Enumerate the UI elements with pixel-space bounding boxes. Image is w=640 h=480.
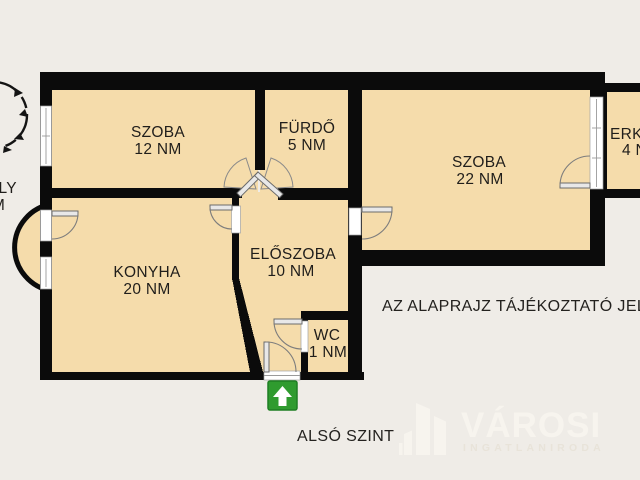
- room-konyha-name: KONYHA: [113, 264, 181, 281]
- balcony-door-szoba22: [590, 97, 603, 189]
- watermark-subtitle: INGATLANIRODA: [463, 442, 605, 454]
- balcony-door-opening: [41, 210, 52, 241]
- room-szoba-22-area: 22 NM: [456, 171, 503, 188]
- room-szoba-22-name: SZOBA: [452, 154, 506, 171]
- disclaimer-text: AZ ALAPRAJZ TÁJÉKOZTATÓ JELLEGŰ: [382, 296, 640, 315]
- room-szoba-12-name: SZOBA: [131, 124, 185, 141]
- room-eloszoba-name: ELŐSZOBA: [250, 246, 336, 263]
- buildings-icon: [399, 403, 446, 455]
- konyha-door-opening: [232, 206, 241, 233]
- watermark-logo: VÁROSI INGATLANIRODA: [399, 403, 605, 455]
- window-konyha-left: [41, 257, 52, 289]
- spiral-staircase-icon: [0, 82, 28, 153]
- floor-plan-page: SZOBA 12 NM FÜRDŐ 5 NM SZOBA 22 NM ERKÉL…: [0, 0, 640, 480]
- room-wc-area: 1 NM: [309, 344, 347, 361]
- entrance-arrow-icon: [268, 381, 297, 410]
- room-konyha-area: 20 NM: [123, 281, 170, 298]
- room-erkely-1-area: 1 NM: [0, 197, 5, 214]
- window-szoba12-left: [41, 106, 52, 166]
- room-erkely-1-name: ERKÉLY: [0, 180, 17, 197]
- room-eloszoba-area: 10 NM: [267, 263, 314, 280]
- watermark-brand: VÁROSI: [461, 405, 601, 445]
- room-furdo-area: 5 NM: [288, 137, 326, 154]
- room-szoba-12-area: 12 NM: [134, 141, 181, 158]
- room-furdo-name: FÜRDŐ: [279, 119, 336, 137]
- room-wc-name: WC: [314, 327, 340, 344]
- wc-door-opening: [301, 321, 308, 352]
- room-erkely-4-area: 4 NM: [622, 142, 640, 159]
- szoba22-door-opening: [349, 208, 361, 235]
- floor-level-label: ALSÓ SZINT: [297, 426, 394, 445]
- room-erkely-4-name: ERKÉLY: [610, 126, 640, 143]
- floor-plan-canvas: SZOBA 12 NM FÜRDŐ 5 NM SZOBA 22 NM ERKÉL…: [0, 0, 640, 480]
